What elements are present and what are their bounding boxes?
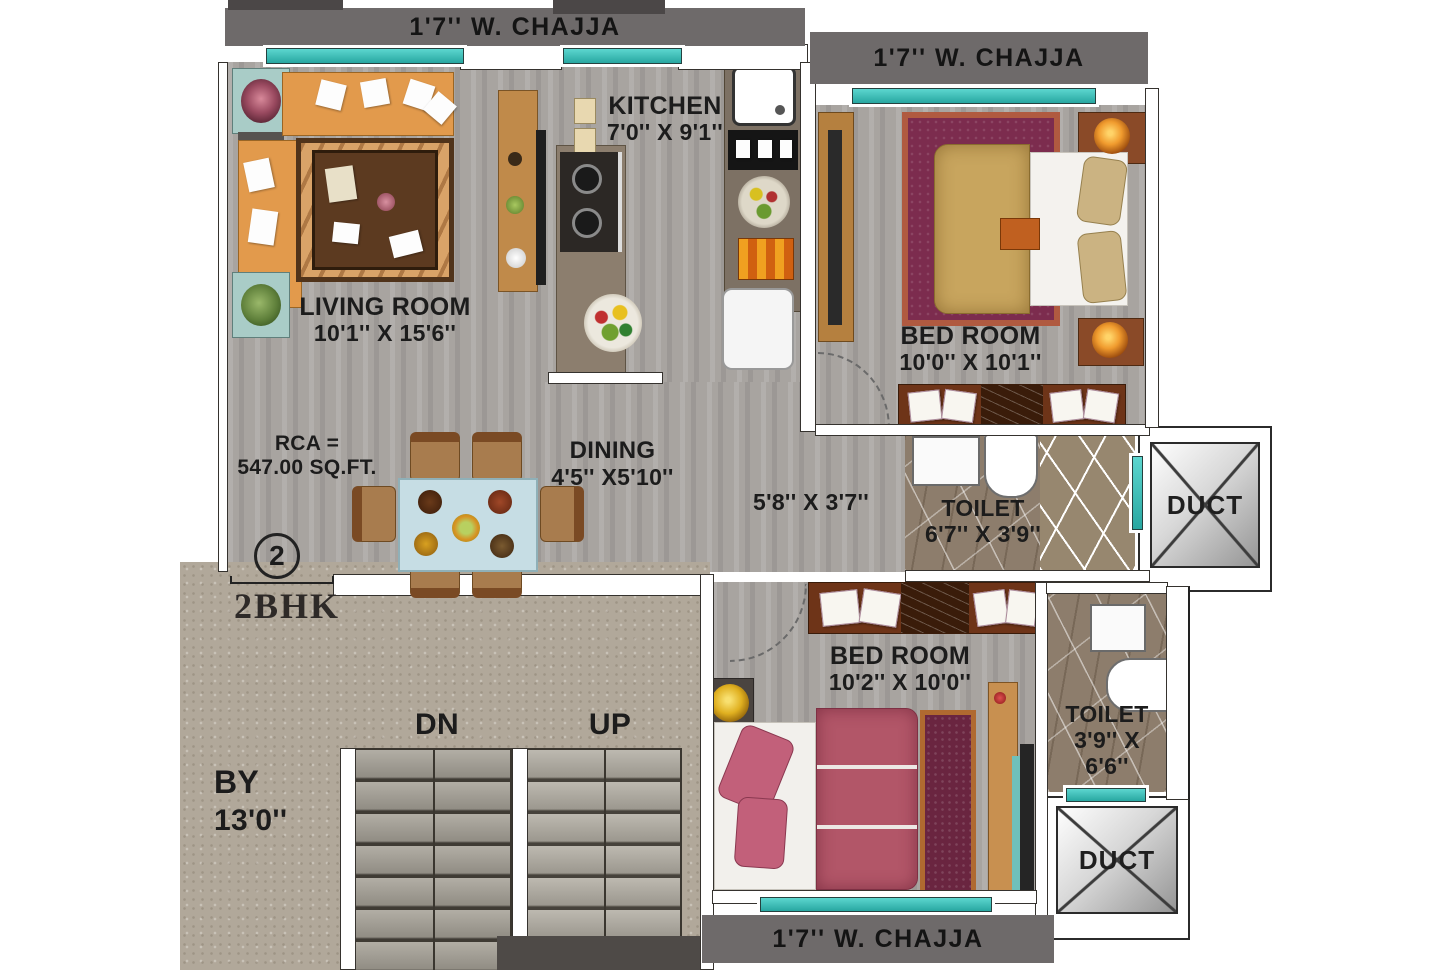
kitchen-name: KITCHEN [575, 92, 755, 120]
bedroom1-dims: 10'0'' X 10'1'' [848, 350, 1093, 376]
duct2-enclosure: DUCT [1046, 796, 1190, 940]
wall-kitchen-bedroom1 [800, 62, 816, 432]
duct2-label: DUCT [1079, 845, 1155, 876]
kitchen-dims: 7'0'' X 9'1'' [575, 120, 755, 146]
wardrobe-center [981, 385, 1043, 427]
dining-name: DINING [520, 438, 705, 465]
unit-type: 2BHK [234, 586, 340, 626]
stove-burner-icon [572, 164, 602, 194]
coffee-table [312, 150, 438, 270]
unit-number-circle: 2 [254, 533, 300, 579]
bedroom2-name: BED ROOM [790, 642, 1010, 670]
chajja-top-right: 1'7'' W. CHAJJA [810, 32, 1148, 84]
gas-stove [560, 152, 622, 252]
stove-burner-icon [572, 208, 602, 238]
lamp-icon [711, 684, 749, 722]
passage-dims-label: 5'8'' X 3'7'' [736, 490, 886, 516]
chajja-bottom: 1'7'' W. CHAJJA [702, 915, 1054, 963]
wardrobe-door [819, 589, 860, 627]
roof-block [553, 0, 665, 14]
food-plate-icon [488, 490, 512, 514]
magazine [332, 222, 360, 245]
wardrobe-door [859, 588, 902, 628]
wardrobe-center [901, 583, 969, 633]
tv-screen [536, 130, 546, 285]
floor-plan: 1'7'' W. CHAJJA 1'7'' W. CHAJJA 1'7'' W.… [0, 0, 1440, 970]
toilet2-name: TOILET [1048, 702, 1166, 728]
toilet2-dims-line1: 3'9'' X [1048, 728, 1166, 754]
window-bedroom2 [760, 897, 992, 912]
kitchen-label: KITCHEN 7'0'' X 9'1'' [575, 92, 755, 146]
bedroom2-dims: 10'2'' X 10'0'' [790, 670, 1010, 696]
roof-block [228, 0, 343, 10]
wall-toilet1-bottom [905, 570, 1150, 582]
bedroom2-pillow [734, 796, 789, 869]
microwave-slot [758, 140, 772, 158]
wardrobe-door [908, 389, 943, 422]
up-text: UP [589, 708, 631, 741]
washbasin [912, 436, 980, 486]
bedroom1-pillow [1076, 155, 1129, 226]
wall-pier-top [460, 44, 562, 70]
unit-number: 2 [269, 540, 285, 571]
window-living [266, 48, 464, 64]
duct1-enclosure: DUCT [1138, 426, 1272, 592]
food-plate-icon [490, 534, 514, 558]
wall-bedroom1-right [1145, 88, 1159, 428]
bedroom2-rug [920, 710, 976, 906]
toilet-wc [984, 434, 1038, 498]
toilet2-label: TOILET 3'9'' X 6'6'' [1048, 702, 1166, 779]
dining-label: DINING 4'5'' X5'10'' [520, 438, 705, 491]
mirror-strip [1012, 756, 1020, 894]
lamp-icon [1092, 322, 1128, 358]
flower-plant-icon [241, 79, 281, 123]
wall-dining-lobby [333, 574, 711, 596]
wall-stairs-left [340, 748, 356, 970]
stairs-up-label: UP [570, 708, 650, 742]
dining-table [398, 478, 538, 572]
decor-item [508, 152, 522, 166]
duct1-label: DUCT [1167, 490, 1243, 521]
duct1: DUCT [1150, 442, 1260, 568]
veg-plate-icon [738, 176, 790, 228]
wall-living-left [218, 62, 228, 572]
table-flower-icon [377, 193, 395, 211]
dining-chair [410, 432, 460, 482]
decor-bowl-icon [506, 248, 526, 268]
unit-type-label: 2BHK [234, 586, 364, 626]
toilet1-name: TOILET [905, 496, 1061, 522]
lobby-name-partial: BY [214, 762, 334, 802]
refrigerator [722, 288, 794, 370]
window-bedroom1 [852, 88, 1096, 104]
bedroom2-tv-screen [1020, 744, 1034, 894]
food-bowl-icon [452, 514, 480, 542]
sofa-cushion [360, 78, 390, 108]
toilet2-dims-line2: 6'6'' [1048, 754, 1166, 780]
magazine [325, 165, 357, 203]
window-toilet1-side [1132, 456, 1143, 530]
wall-toilet2-top [1046, 582, 1168, 594]
bedroom1-wardrobe [898, 384, 1126, 428]
passage-dims: 5'8'' X 3'7'' [736, 490, 886, 516]
dimension-line [230, 576, 334, 584]
toilet1-dims: 6'7'' X 3'9'' [905, 522, 1061, 548]
food-plate-icon [414, 532, 438, 556]
bedroom2-label: BED ROOM 10'2'' X 10'0'' [790, 642, 1010, 696]
bedroom1-name: BED ROOM [848, 322, 1093, 350]
lamp-icon [1094, 118, 1130, 154]
bed-tray [1000, 218, 1040, 250]
storage-crate [738, 238, 794, 280]
dining-chair [540, 486, 584, 542]
duvet-stripe [817, 765, 917, 769]
wall-bedroom1-bottom [815, 424, 1150, 436]
lobby-dims: 13'0'' [214, 802, 334, 840]
wall-toilet2-right [1166, 586, 1190, 800]
decor-plant-icon [506, 196, 524, 214]
stair-flight-down [356, 748, 512, 970]
dn-text: DN [415, 708, 459, 741]
window-toilet2 [1066, 788, 1146, 802]
wardrobe-door [941, 389, 977, 423]
duct2: DUCT [1056, 806, 1178, 914]
washbasin [1090, 604, 1146, 652]
living-room-label: LIVING ROOM 10'1'' X 15'6'' [275, 293, 495, 347]
bedroom1-pillow [1076, 230, 1127, 304]
window-kitchen [563, 48, 682, 64]
rca-line2: 547.00 SQ.FT. [227, 456, 387, 480]
dining-chair [472, 432, 522, 482]
living-room-name: LIVING ROOM [275, 293, 495, 321]
duvet-stripe [817, 825, 917, 829]
wall-bedroom2-right [1035, 582, 1048, 940]
wardrobe-door [1049, 389, 1084, 423]
chajja-top-right-label: 1'7'' W. CHAJJA [873, 44, 1084, 73]
sink-drain-icon [775, 105, 785, 115]
rca-label: RCA = 547.00 SQ.FT. [227, 432, 387, 479]
bedroom1-label: BED ROOM 10'0'' X 10'1'' [848, 322, 1093, 376]
stair-landing-block [497, 936, 702, 970]
food-plate-icon [418, 490, 442, 514]
dining-chair [352, 486, 396, 542]
fruit-platter-icon [584, 294, 642, 352]
rca-line1: RCA = [227, 432, 387, 456]
sofa-cushion [248, 208, 278, 245]
wall-bedroom2-left [700, 574, 714, 970]
stair-divider-line [433, 750, 435, 970]
dining-dims: 4'5'' X5'10'' [520, 465, 705, 491]
living-room-dims: 10'1'' X 15'6'' [275, 321, 495, 347]
bedroom1-tv-screen [828, 130, 842, 325]
wall-pier-top [678, 44, 808, 70]
chajja-top: 1'7'' W. CHAJJA [225, 8, 805, 46]
chajja-top-label: 1'7'' W. CHAJJA [409, 13, 620, 42]
toilet1-label: TOILET 6'7'' X 3'9'' [905, 496, 1061, 548]
wardrobe-door [1005, 589, 1039, 626]
microwave-slot [780, 140, 792, 158]
lobby-label: BY 13'0'' [214, 762, 334, 840]
wall-kitchen-bottom [548, 372, 663, 384]
bedroom2-bed-duvet [816, 708, 918, 890]
chajja-bottom-label: 1'7'' W. CHAJJA [772, 925, 983, 954]
stairs-down-label: DN [397, 708, 477, 742]
magazine [389, 230, 423, 259]
bedroom2-wardrobe [808, 582, 1040, 634]
wardrobe-door [1083, 389, 1119, 424]
wardrobe-door [973, 589, 1009, 627]
